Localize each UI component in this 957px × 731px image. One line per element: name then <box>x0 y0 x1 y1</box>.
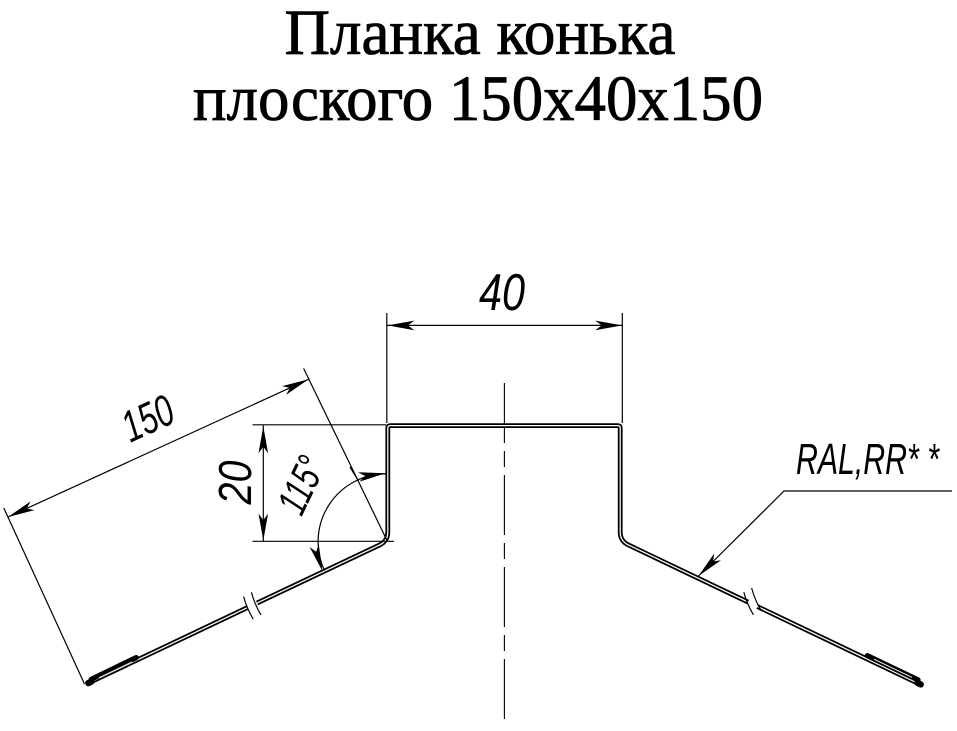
svg-text:Планка конька: Планка конька <box>285 0 676 69</box>
svg-text:RAL,RR* *: RAL,RR* * <box>796 435 940 484</box>
svg-text:40: 40 <box>479 264 525 322</box>
svg-text:плоского 150х40х150: плоского 150х40х150 <box>193 63 763 135</box>
svg-text:20: 20 <box>209 460 261 505</box>
